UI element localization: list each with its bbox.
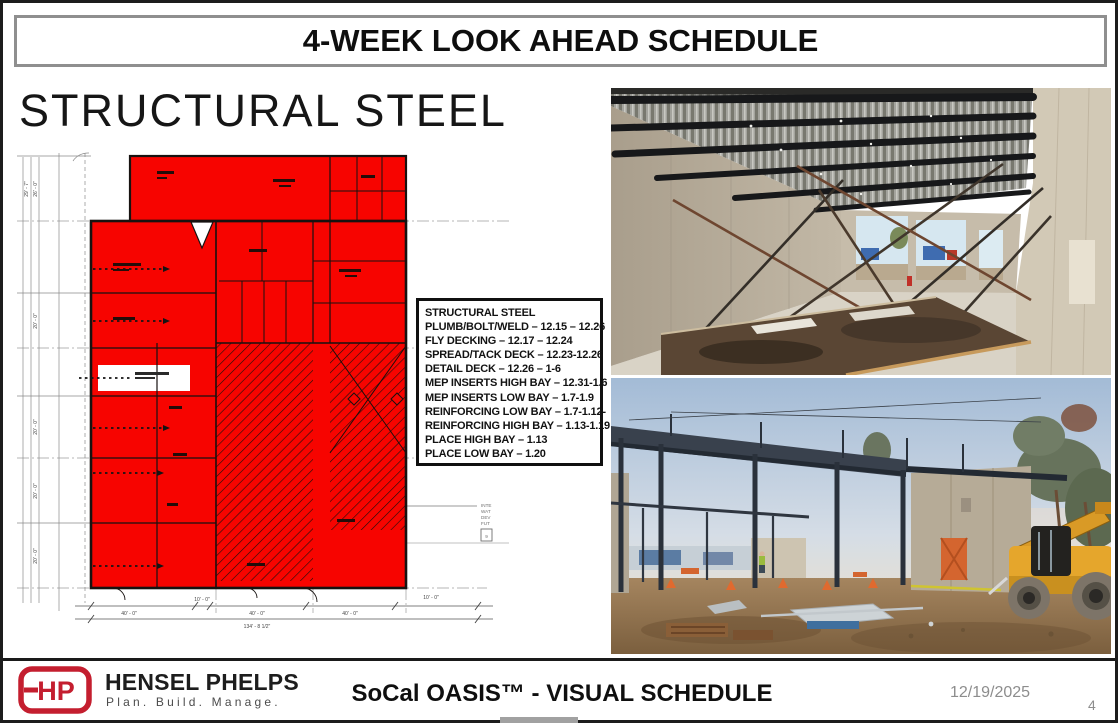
schedule-item: SPREAD/TACK DECK – 12.23-12.26 [425, 348, 596, 362]
schedule-item: PLACE LOW BAY – 1.20 [425, 447, 596, 461]
svg-text:29' - 7": 29' - 7" [24, 181, 30, 197]
svg-text:DEV: DEV [481, 515, 491, 520]
svg-text:20' - 0": 20' - 0" [33, 483, 39, 499]
footer-date: 12/19/2025 [950, 684, 1030, 702]
bottom-gray-bar [500, 717, 578, 723]
schedule-callout-box: STRUCTURAL STEEL PLUMB/BOLT/WELD – 12.15… [416, 298, 603, 466]
slide: 4-WEEK LOOK AHEAD SCHEDULE STRUCTURAL ST… [0, 0, 1118, 723]
schedule-item: MEP INSERTS LOW BAY – 1.7-1.9 [425, 391, 596, 405]
construction-worker [759, 551, 765, 573]
section-heading: STRUCTURAL STEEL [19, 85, 507, 137]
svg-text:WAT: WAT [481, 509, 491, 514]
slide-title-box: 4-WEEK LOOK AHEAD SCHEDULE [14, 15, 1107, 67]
svg-text:20' - 0": 20' - 0" [33, 419, 39, 435]
page-number: 4 [1088, 697, 1096, 713]
svg-text:26' - 0": 26' - 0" [33, 181, 39, 197]
schedule-item: DETAIL DECK – 12.26 – 1-6 [425, 362, 596, 376]
photo-interior-svg [611, 88, 1111, 375]
svg-text:9: 9 [485, 534, 488, 539]
svg-text:FUT: FUT [481, 521, 490, 526]
slide-stage: 4-WEEK LOOK AHEAD SCHEDULE STRUCTURAL ST… [0, 0, 1118, 723]
svg-text:10' - 0": 10' - 0" [423, 595, 439, 601]
svg-text:40' - 0": 40' - 0" [121, 611, 137, 617]
svg-text:40' - 0": 40' - 0" [342, 611, 358, 617]
right-concrete-wall [1016, 88, 1111, 375]
schedule-item: REINFORCING HIGH BAY – 1.13-1.19 [425, 419, 596, 433]
schedule-title: STRUCTURAL STEEL [425, 306, 596, 320]
plan-side-note: INTE WAT DEV FUT 9 [481, 503, 492, 541]
schedule-item: PLACE HIGH BAY – 1.13 [425, 433, 596, 447]
svg-text:10' - 0": 10' - 0" [194, 597, 210, 603]
schedule-item: MEP INSERTS HIGH BAY – 12.31-1.6 [425, 376, 596, 390]
schedule-item: PLUMB/BOLT/WELD – 12.15 – 12.26 [425, 320, 596, 334]
plan-bottom-dimensions: 40' - 0" 10' - 0" 40' - 0" 40' - 0" 10' … [75, 595, 493, 630]
svg-text:INTE: INTE [481, 503, 491, 508]
svg-text:20' - 0": 20' - 0" [33, 548, 39, 564]
plan-left-dimensions: 29' - 7" 26' - 0" 20' - 0" 20' - 0" 20' … [24, 181, 39, 564]
schedule-item: REINFORCING LOW BAY – 1.7-1.12- [425, 405, 596, 419]
slide-title: 4-WEEK LOOK AHEAD SCHEDULE [303, 23, 819, 59]
footer-divider [3, 658, 1115, 661]
photo-interior-steel-deck [611, 88, 1111, 375]
schedule-item: FLY DECKING – 12.17 – 12.24 [425, 334, 596, 348]
photo-exterior-steel-framing [611, 378, 1111, 654]
svg-text:134' - 8 1/2": 134' - 8 1/2" [244, 624, 271, 630]
photo-exterior-svg [611, 378, 1111, 654]
svg-text:40' - 0": 40' - 0" [249, 611, 265, 617]
svg-text:20' - 0": 20' - 0" [33, 313, 39, 329]
